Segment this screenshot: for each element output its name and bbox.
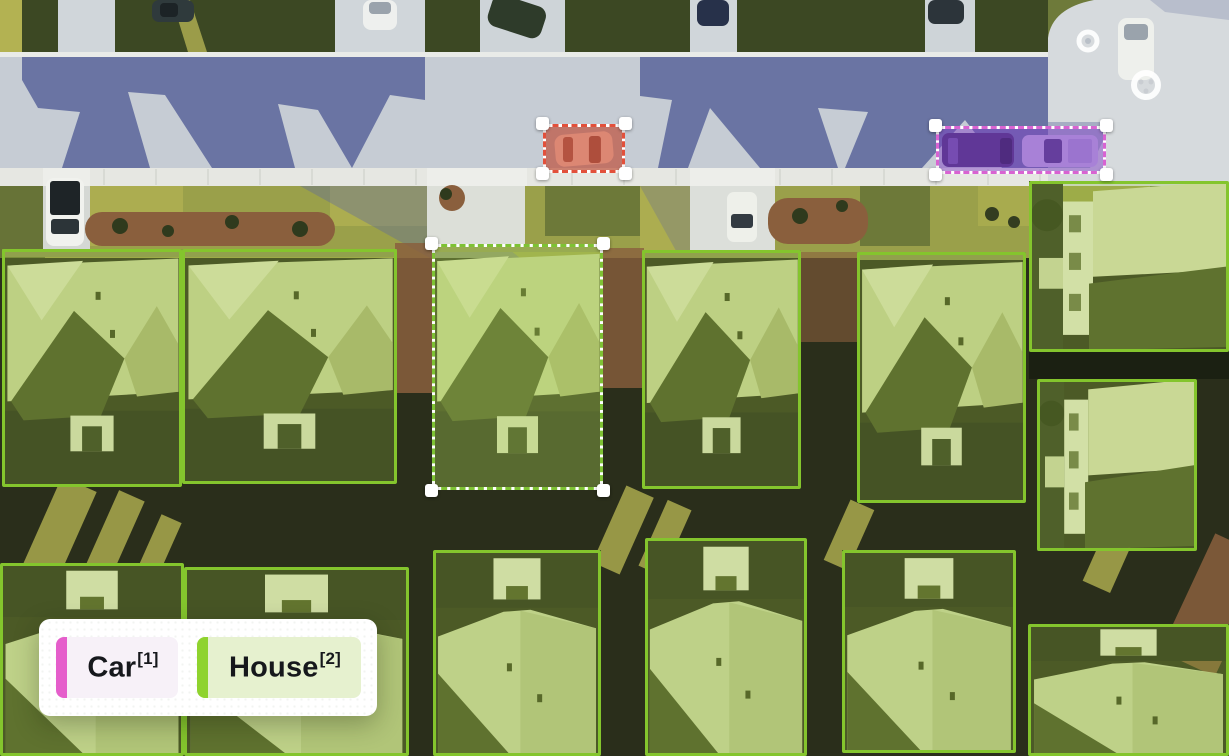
resize-handle-br[interactable] [619,167,632,180]
legend-item-car[interactable]: Car[1] [56,637,178,698]
resize-handle-bl[interactable] [425,484,438,497]
car-color-bar-icon [56,637,67,698]
bbox-house[interactable] [645,538,807,756]
house-color-bar-icon [197,637,208,698]
resize-handle-br[interactable] [597,484,610,497]
resize-handle-br[interactable] [1100,168,1113,181]
bbox-house[interactable] [1029,181,1229,352]
bbox-house[interactable] [1028,624,1229,756]
bbox-car-selected[interactable] [936,126,1106,174]
legend-shortcut-house: [2] [320,649,341,668]
resize-handle-tr[interactable] [1100,119,1113,132]
resize-handle-bl[interactable] [929,168,942,181]
bbox-house-selected[interactable] [432,244,603,490]
resize-handle-tl[interactable] [425,237,438,250]
bbox-house[interactable] [642,250,801,489]
resize-handle-tl[interactable] [929,119,942,132]
annotation-canvas[interactable]: Car[1] House[2] [0,0,1229,756]
bbox-house[interactable] [842,550,1016,753]
class-legend: Car[1] House[2] [39,619,377,716]
legend-item-house[interactable]: House[2] [197,637,361,698]
bbox-house[interactable] [2,249,182,487]
bbox-house[interactable] [857,252,1026,503]
bbox-car-selected[interactable] [543,124,625,173]
resize-handle-tr[interactable] [619,117,632,130]
resize-handle-tr[interactable] [597,237,610,250]
bbox-house[interactable] [182,249,397,484]
resize-handle-bl[interactable] [536,167,549,180]
resize-handle-tl[interactable] [536,117,549,130]
bbox-house[interactable] [433,550,601,756]
legend-label-house: House[2] [229,651,341,685]
legend-shortcut-car: [1] [137,649,158,668]
legend-label-car: Car[1] [87,651,158,685]
bbox-house[interactable] [1037,379,1197,551]
